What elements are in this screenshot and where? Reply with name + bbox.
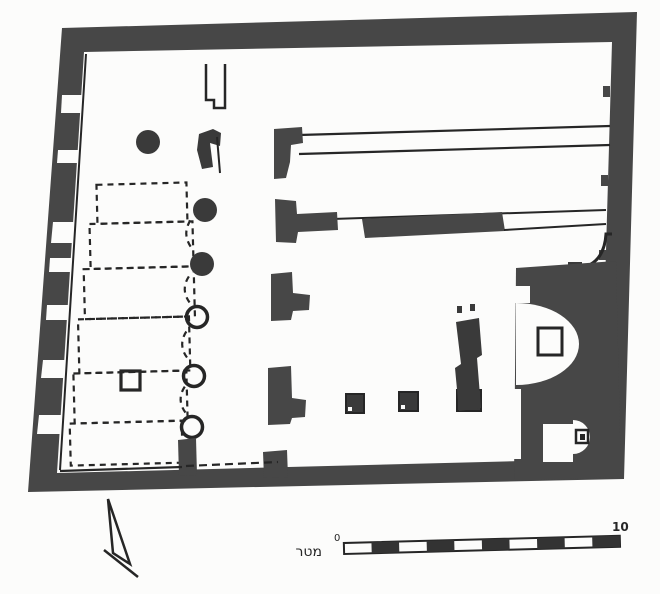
column-filled [136, 130, 160, 154]
scale-segment-black [537, 537, 565, 549]
side-room [543, 424, 573, 462]
column-filled [193, 198, 217, 222]
wall-gap [49, 258, 72, 272]
scale-segment-black [371, 542, 399, 554]
floor-plan-page: 0 10 מטר [0, 0, 660, 594]
wall-gap [61, 95, 82, 113]
scale-segment-black [592, 536, 620, 548]
bema-dot [457, 306, 462, 313]
wall-gap [46, 305, 69, 320]
floor-plan-drawing: 0 10 מטר [0, 0, 660, 594]
wall-gap [51, 222, 74, 243]
apse-notch [510, 286, 530, 303]
doorway-recess [508, 389, 521, 459]
apse-square-base [538, 328, 562, 355]
wall-bump [601, 175, 608, 186]
south-wall-stub [178, 438, 197, 476]
wall-gap [37, 415, 62, 434]
wall-gap [57, 150, 79, 163]
niche-square-dot [580, 434, 585, 440]
scale-ten-label: 10 [612, 520, 629, 534]
scale-segment-black [427, 540, 455, 552]
column-filled [190, 252, 214, 276]
wall-bump [603, 86, 610, 97]
wall-gap [41, 360, 65, 378]
scale-unit-label: מטר [296, 544, 323, 560]
pillar-highlight [401, 405, 405, 409]
scale-zero-label: 0 [334, 533, 340, 544]
bema-dot [470, 304, 475, 311]
apse-block [508, 261, 621, 481]
wall-pier-stub [263, 450, 288, 478]
pillar-highlight [348, 407, 352, 411]
scale-segment-black [482, 539, 510, 551]
